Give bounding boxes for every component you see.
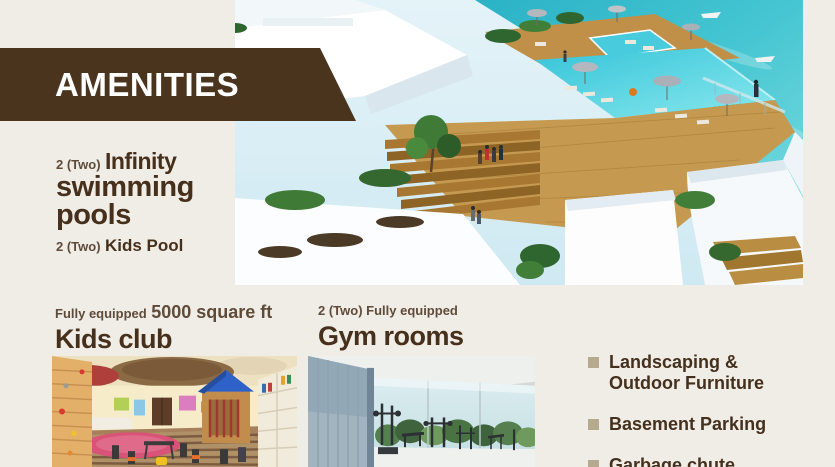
gym-prefix: 2 (Two) Fully equipped — [318, 303, 458, 318]
kids-club-heading: Fully equipped 5000 square ft Kids club — [55, 303, 272, 353]
climbing-wall — [52, 356, 92, 467]
beach-ball-icon — [629, 88, 637, 96]
amenities-list: Landscaping & Outdoor Furniture Basement… — [588, 352, 788, 467]
amenities-brochure-page: AMENITIES 2 (Two) Infinity swimming pool… — [0, 0, 835, 467]
kids-club-area: 5000 square ft — [151, 302, 272, 322]
floor — [374, 447, 535, 467]
gym-illustration — [308, 356, 535, 467]
pools-heading: 2 (Two) Infinity swimming pools 2 (Two) … — [56, 150, 194, 255]
kids-pool-count-label: 2 (Two) — [56, 239, 101, 254]
gym-title: Gym rooms — [318, 323, 464, 350]
kids-pool-line: 2 (Two) Kids Pool — [56, 237, 194, 255]
list-item: Basement Parking — [588, 414, 788, 435]
amenity-label: Basement Parking — [609, 414, 784, 435]
list-item: Garbage chute — [588, 455, 788, 467]
pools-title-word2: swimming — [56, 173, 194, 201]
kids-club-subtitle: Fully equipped 5000 square ft — [55, 303, 272, 322]
rooftop-pool-illustration — [235, 0, 803, 285]
gym-rooms-image — [308, 356, 535, 467]
kids-pool-label: Kids Pool — [105, 236, 183, 255]
kids-club-image — [52, 356, 297, 467]
pools-count-label: 2 (Two) — [56, 157, 101, 172]
bullet-square-icon — [588, 419, 599, 430]
kids-club-title: Kids club — [55, 326, 272, 353]
gym-subtitle: 2 (Two) Fully equipped — [318, 303, 464, 319]
sofa — [90, 417, 132, 429]
bullet-square-icon — [588, 357, 599, 368]
pools-title-word3: pools — [56, 201, 194, 229]
list-item: Landscaping & Outdoor Furniture — [588, 352, 788, 394]
pools-count-line: 2 (Two) Infinity — [56, 150, 194, 173]
amenity-label: Landscaping & Outdoor Furniture — [609, 352, 784, 394]
page-title: AMENITIES — [55, 66, 239, 104]
kids-club-illustration — [52, 356, 297, 467]
kids-club-prefix: Fully equipped — [55, 306, 147, 321]
gym-heading: 2 (Two) Fully equipped Gym rooms — [318, 303, 464, 350]
bookshelf — [258, 366, 297, 467]
amenities-banner: AMENITIES — [0, 48, 356, 121]
amenity-label: Garbage chute — [609, 455, 784, 467]
rooftop-pool-image — [235, 0, 803, 285]
bullet-square-icon — [588, 460, 599, 467]
locker-wall — [308, 356, 374, 467]
